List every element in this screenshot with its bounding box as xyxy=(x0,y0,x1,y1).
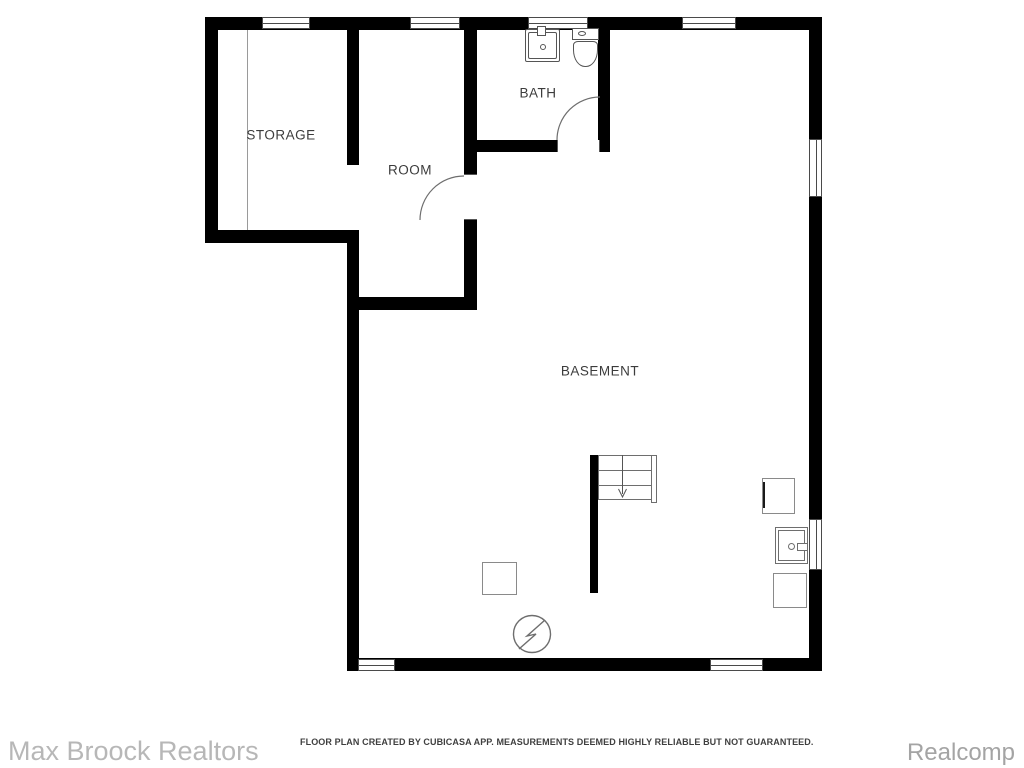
window-icon xyxy=(710,659,763,671)
window-pane-line xyxy=(816,140,817,196)
appliance-square-icon xyxy=(482,562,517,595)
watermark-brokerage: Max Broock Realtors xyxy=(8,736,259,767)
wall-bath-right xyxy=(598,17,610,152)
wall-room-right xyxy=(464,17,477,310)
appliance-square-icon xyxy=(773,573,807,608)
window-icon xyxy=(682,17,736,29)
sink-drain xyxy=(540,44,546,50)
window-pane-line xyxy=(359,665,394,666)
appliance-square-icon xyxy=(762,478,795,514)
room-label-room: ROOM xyxy=(388,163,432,178)
wall-storage-room-divider xyxy=(347,17,359,165)
door-swing-arc-bath xyxy=(557,97,600,140)
watermark-realcomp: Realcomp xyxy=(907,739,1015,767)
window-icon xyxy=(410,17,460,29)
wall-stairs xyxy=(590,455,598,593)
window-icon xyxy=(262,17,310,29)
toilet-flush-button xyxy=(578,31,586,36)
wall-left-upper xyxy=(205,17,218,243)
symbols-overlay xyxy=(0,0,1024,768)
door-opening-bath xyxy=(557,140,600,152)
sink-faucet xyxy=(537,26,546,36)
door-opening-room xyxy=(464,174,477,220)
window-pane-line xyxy=(683,23,735,24)
window-icon xyxy=(358,659,395,671)
window-pane-line xyxy=(711,665,762,666)
stair-tread xyxy=(598,485,652,486)
electrical-panel-icon xyxy=(514,616,551,653)
window-icon xyxy=(809,139,822,197)
room-label-basement: BASEMENT xyxy=(561,364,639,379)
disclaimer-text: FLOOR PLAN CREATED BY CUBICASA APP. MEAS… xyxy=(300,737,813,747)
door-swing-arc-room xyxy=(420,176,464,220)
window-pane-line xyxy=(816,520,817,569)
stair-tread xyxy=(598,470,652,471)
window-pane-line xyxy=(263,23,309,24)
room-label-storage: STORAGE xyxy=(246,128,315,143)
window-pane-line xyxy=(411,23,459,24)
utility-sink-drain xyxy=(788,543,795,550)
lightning-bolt-icon xyxy=(519,620,545,649)
toilet-bowl-icon xyxy=(573,41,598,67)
staircase-icon xyxy=(598,455,652,500)
wall-storage-bottom xyxy=(205,230,359,243)
appliance-accent-edge xyxy=(763,482,765,508)
window-icon xyxy=(809,519,822,570)
window-pane-line xyxy=(529,23,587,24)
wall-room-bottom xyxy=(347,297,477,310)
floorplan-canvas: STORAGE ROOM BATH BASEMENT FLOOR PLAN CR… xyxy=(0,0,1024,768)
room-label-bath: BATH xyxy=(519,86,556,101)
utility-sink-tap xyxy=(797,543,808,551)
stair-handrail xyxy=(651,455,657,503)
utility-sink-icon xyxy=(775,527,808,564)
wall-right xyxy=(809,17,822,671)
